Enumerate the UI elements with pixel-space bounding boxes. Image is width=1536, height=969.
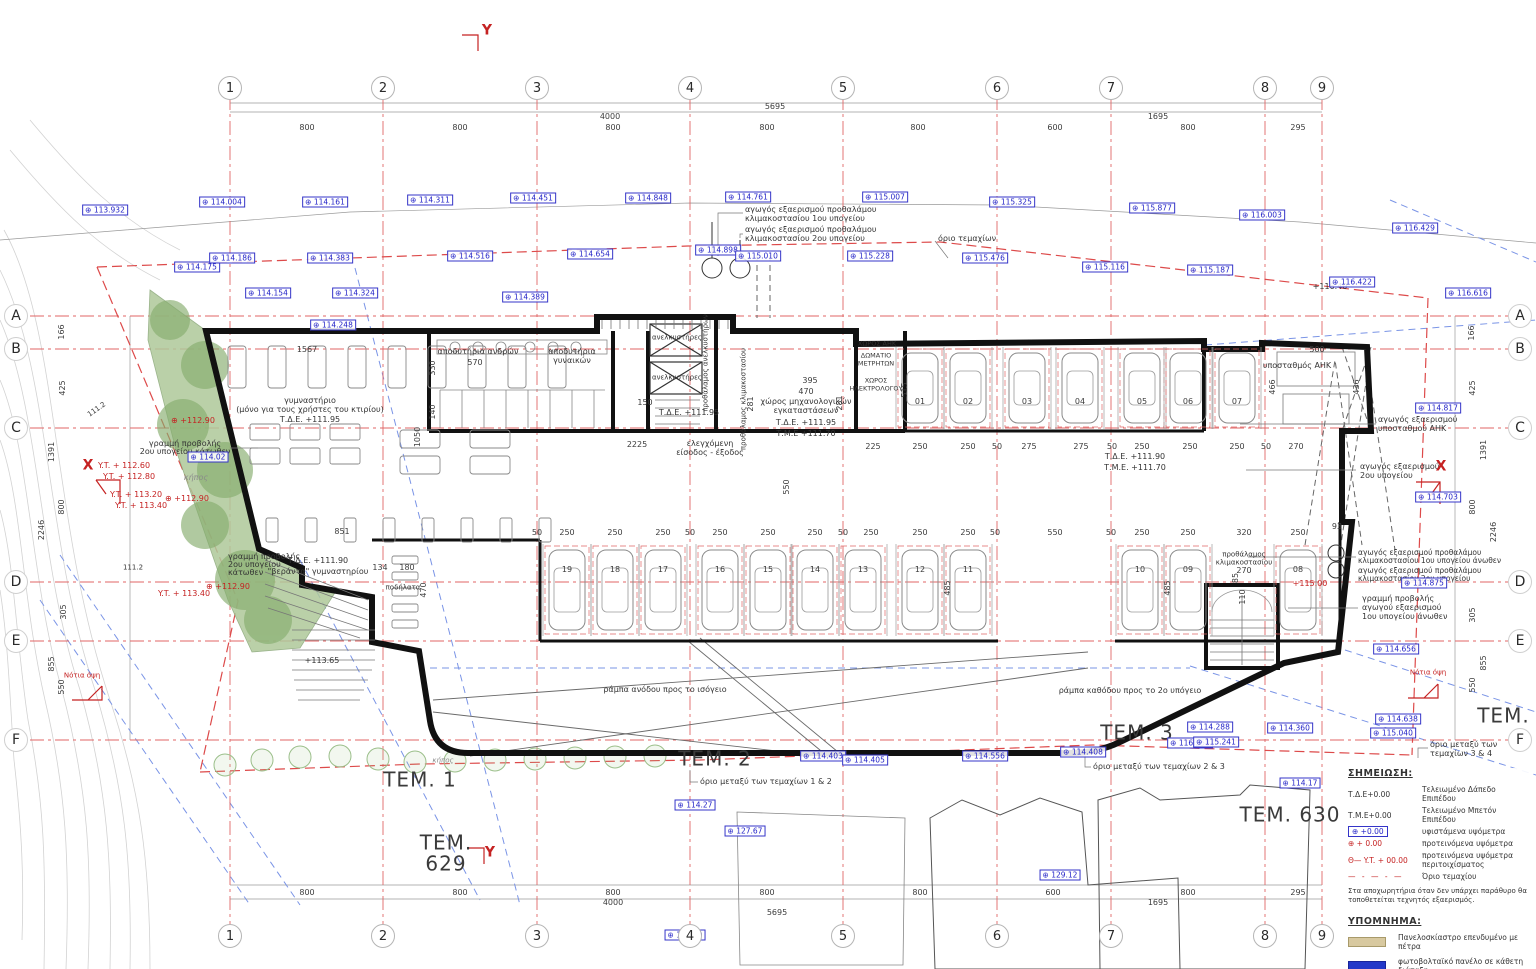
dimension-label: 295 (1290, 889, 1305, 897)
grid-column-number: 8 (1253, 924, 1277, 948)
survey-elevation-marker: ⊕ 114.451 (510, 193, 556, 204)
dimension-label: 180 (399, 564, 414, 572)
grid-column-number: 1 (218, 924, 242, 948)
annotation-label: ΧΩΡΟΣ ΑΗΚ (858, 341, 896, 348)
survey-elevation-marker: ⊕ 116.429 (1392, 223, 1438, 234)
survey-elevation-marker: ⊕ 116.616 (1445, 288, 1491, 299)
annotation-label: +115.00 (1293, 580, 1328, 588)
survey-elevation-marker: ⊕ 114.848 (625, 193, 671, 204)
dimension-label: 281 (747, 396, 755, 411)
survey-elevation-marker: ⊕ 114.004 (199, 197, 245, 208)
legend-swatch-pv-vertical (1348, 961, 1386, 969)
parcel-label: ΤΕΜ. (420, 833, 472, 854)
annotation-label: ΧΩΡΟΣ (865, 378, 888, 385)
legend-panel: ΣΗΜΕΙΩΣΗ: Τ.Δ.Ε+0.00Τελειωμένο Δάπεδο Επ… (1348, 768, 1532, 969)
annotation-label: Τ.Δ.Ε. +111.95 (776, 419, 836, 427)
grid-row-letter: F (1508, 728, 1532, 752)
dimension-label: 50 (1261, 443, 1271, 451)
parking-space-number: 06 (1183, 398, 1193, 406)
parking-space-number: 14 (810, 566, 820, 574)
dimension-label: 1567 (297, 346, 317, 354)
dimension-label: 166 (1468, 325, 1476, 340)
dimension-label: 305 (60, 604, 68, 619)
notes-rows: Τ.Δ.Ε+0.00Τελειωμένο Δάπεδο ΕπιπέδουΤ.Μ.… (1348, 785, 1532, 881)
annotation-label: κλιμακοστασίου 1ου υπογείου άνωθεν (1358, 557, 1501, 565)
annotation-label: προθάλαμος ανελκυστήρων (702, 314, 709, 412)
dimension-label: 570 (467, 359, 482, 367)
dimension-label: 250 (960, 443, 975, 451)
survey-elevation-marker: ⊕ 115.187 (1187, 265, 1233, 276)
dimension-label: 800 (910, 124, 925, 132)
annotation-label: Y.T. + 113.20 (110, 491, 162, 499)
parking-space-number: 17 (658, 566, 668, 574)
parking-space-number: 07 (1232, 398, 1242, 406)
parking-space-number: 11 (963, 566, 973, 574)
annotation-label: +113.65 (305, 657, 340, 665)
dimension-label: 500 (1309, 346, 1324, 354)
legend-note-key: Θ— Y.T. + 00.00 (1348, 856, 1422, 865)
survey-elevation-marker: ⊕ 114.817 (1415, 403, 1461, 414)
annotation-label: είσοδος - έξοδος (676, 449, 744, 457)
annotation-label: Y.T. + 113.40 (158, 590, 210, 598)
dimension-label: 800 (1469, 499, 1477, 514)
annotation-label: γυναικών (553, 357, 591, 365)
survey-elevation-marker: ⊕ 115.116 (1082, 262, 1128, 273)
dimension-label: 50 (838, 529, 848, 537)
annotation-label: Τ.Μ.Ε. +111.70 (1104, 464, 1166, 472)
grid-column-number: 6 (985, 924, 1009, 948)
dimension-label: 250 (1134, 529, 1149, 537)
survey-elevation-marker: ⊕ 114.875 (1401, 578, 1447, 589)
survey-elevation-marker: ⊕ 114.383 (307, 253, 353, 264)
dimension-label: 305 (1469, 607, 1477, 622)
survey-elevation-marker: ⊕ 115.325 (989, 197, 1035, 208)
grid-column-number: 9 (1310, 76, 1334, 100)
annotation-label: κήπος (432, 757, 453, 764)
dimension-label: 250 (807, 529, 822, 537)
grid-row-letter: F (4, 728, 28, 752)
dimension-label: 250 (1229, 443, 1244, 451)
dimension-label: 2246 (1490, 522, 1498, 542)
leader-lines (230, 213, 1428, 782)
annotation-label: όριο μεταξύ των τεμαχίων 1 & 2 (700, 778, 832, 786)
dimension-label: 4000 (600, 113, 620, 121)
annotation-label: αποδυτήρια ανδρών (438, 348, 519, 356)
survey-elevation-marker: ⊕ 115.007 (862, 192, 908, 203)
annotation-label: ράμπα καθόδου προς το 2ο υπόγειο (1059, 687, 1202, 695)
dimension-label: 485 (944, 580, 952, 595)
parking-space-number: 03 (1022, 398, 1032, 406)
dimension-label: 250 (712, 529, 727, 537)
survey-elevation-marker: ⊕ 114.403 (800, 751, 846, 762)
parking-space-number: 05 (1137, 398, 1147, 406)
notes-title: ΣΗΜΕΙΩΣΗ: (1348, 768, 1532, 779)
dimension-label: 140 (429, 404, 437, 419)
dimension-label: 550 (1469, 677, 1477, 692)
dimension-label: 250 (1134, 443, 1149, 451)
dimension-label: 250 (760, 529, 775, 537)
dimension-label: 800 (912, 889, 927, 897)
survey-elevation-marker: ⊕ 114.324 (332, 288, 378, 299)
dimension-label: 466 (1269, 379, 1277, 394)
stair-treads (265, 320, 1274, 700)
grid-column-number: 7 (1099, 924, 1123, 948)
annotation-label: 111.2 (123, 564, 143, 571)
survey-elevation-marker: ⊕ 114.656 (1373, 644, 1419, 655)
dimension-label: 1391 (48, 442, 56, 462)
survey-elevation-marker: ⊕ 114.154 (245, 288, 291, 299)
floor-plan-sheet: ΣΗΜΕΙΩΣΗ: Τ.Δ.Ε+0.00Τελειωμένο Δάπεδο Επ… (0, 0, 1536, 969)
survey-elevation-marker: ⊕ 115.877 (1129, 203, 1175, 214)
legend-item-row: Πανελοσκίαστρο επενδυμένο με πέτρα (1348, 933, 1532, 951)
annotation-label: κλιμακοστασίου (1216, 559, 1273, 566)
grid-column-number: 5 (831, 76, 855, 100)
dimension-label: 250 (863, 529, 878, 537)
dimension-label: 250 (1182, 443, 1197, 451)
grid-row-letter: A (1508, 304, 1532, 328)
legend-note-row: Θ— Y.T. + 00.00προτεινόμενα υψόμετρα περ… (1348, 851, 1532, 869)
grid-row-letter: C (1508, 416, 1532, 440)
legend-note-row: — - — - —Όριο τεμαχίου (1348, 872, 1532, 881)
annotation-label: Τ.Μ.Ε +111.70 (776, 430, 835, 438)
dimension-label: 800 (759, 889, 774, 897)
legend-note-row: ⊕ + 0.00προτεινόμενα υψόμετρα (1348, 839, 1532, 848)
dimension-label: 851 (334, 528, 349, 536)
survey-elevation-marker: ⊕ 129.12 (1040, 870, 1081, 881)
dimension-label: 250 (912, 443, 927, 451)
legend-note-key: — - — - — (1348, 872, 1422, 881)
grid-column-number: 9 (1310, 924, 1334, 948)
parking-space-number: 18 (610, 566, 620, 574)
legend-note-desc: προτεινόμενα υψόμετρα (1422, 839, 1532, 848)
survey-elevation-marker: ⊕ 127.67 (725, 826, 766, 837)
survey-elevation-marker: ⊕ 115.228 (847, 251, 893, 262)
dimension-label: 800 (759, 124, 774, 132)
dimension-label: 600 (1045, 889, 1060, 897)
dimension-label: 50 (532, 529, 542, 537)
grid-row-letter: B (4, 337, 28, 361)
legend-note: Στα αποχωρητήρια όταν δεν υπάρχει παράθυ… (1348, 887, 1532, 906)
legend-note-desc: προτεινόμενα υψόμετρα περιτοιχίσματος (1422, 851, 1532, 869)
dimension-label: 5695 (767, 909, 787, 917)
legend-item-label: φωτοβολταϊκό πανέλο σε κάθετη διάταξη (1398, 957, 1532, 969)
parking-space-number: 16 (715, 566, 725, 574)
annotation-label: Νότια όψη (64, 672, 100, 679)
dimension-label: 855 (48, 656, 56, 671)
annotation-label: ανελκυστήρες (652, 334, 702, 341)
ramp-lines (433, 638, 1088, 757)
annotation-label: 1ου υπογείου άνωθεν (1362, 613, 1447, 621)
grid-row-letter: B (1508, 337, 1532, 361)
survey-elevation-marker: ⊕ 114.556 (962, 751, 1008, 762)
grid-column-number: 4 (678, 76, 702, 100)
grid-column-number: 4 (678, 924, 702, 948)
dimension-label: 550 (58, 679, 66, 694)
dimension-label: 250 (912, 529, 927, 537)
annotation-label: κάτωθεν (228, 569, 263, 577)
grid-column-number: 8 (1253, 76, 1277, 100)
legend-note-row: Τ.Μ.Ε+0.00Τελειωμένο Μπετόν Επιπέδου (1348, 806, 1532, 824)
dimension-label: 50 (1107, 443, 1117, 451)
survey-elevation-marker: ⊕ 115.010 (735, 251, 781, 262)
grid-column-number: 6 (985, 76, 1009, 100)
dimension-label: 425 (1469, 380, 1477, 395)
survey-elevation-marker: ⊕ 114.288 (1187, 722, 1233, 733)
parking-space-number: 09 (1183, 566, 1193, 574)
dimension-label: 320 (1236, 529, 1251, 537)
parking-space-number: 04 (1075, 398, 1085, 406)
annotation-label: Y.T. + 112.60 (98, 462, 150, 470)
survey-elevation-marker: ⊕ 114.516 (447, 251, 493, 262)
legend-rows: Πανελοσκίαστρο επενδυμένο με πέτραφωτοβο… (1348, 933, 1532, 969)
dimension-label: 250 (1180, 529, 1195, 537)
dimension-label: 800 (605, 124, 620, 132)
dimension-label: 1391 (1480, 440, 1488, 460)
survey-elevation-marker: ⊕ 116.422 (1329, 277, 1375, 288)
grid-column-number: 3 (525, 924, 549, 948)
parking-space-number: 08 (1293, 566, 1303, 574)
annotation-label: ⊕ +112.90 (171, 417, 215, 425)
parking-space-number: 01 (915, 398, 925, 406)
dimension-label: 855 (1480, 655, 1488, 670)
dimension-label: 250 (655, 529, 670, 537)
annotation-label: Τ.Δ.Ε. +111.90 (1105, 453, 1165, 461)
annotation-label: υποσταθμός ΑΗΚ (1263, 362, 1331, 370)
annotation-label: εγκαταστάσεων (774, 407, 839, 415)
dimension-label: 1695 (1148, 113, 1168, 121)
annotation-label: ανελκυστήρες (652, 374, 702, 381)
grid-column-number: 2 (371, 924, 395, 948)
annotation-label: Τ.Δ.Ε. +111.95 (280, 416, 340, 424)
survey-elevation-marker: ⊕ 114.408 (1060, 747, 1106, 758)
dimension-label: 470 (798, 388, 813, 396)
annotation-label: ράμπα ανόδου προς το ισόγειο (603, 686, 726, 694)
survey-elevation-marker: ⊕ 114.186 (209, 253, 255, 264)
dimension-label: 800 (452, 889, 467, 897)
annotation-label: ΔΩΜΑΤΙΟ (861, 353, 891, 360)
parcel-label: ΤΕΜ. 630 (1240, 805, 1341, 826)
parking-space-number: 12 (915, 566, 925, 574)
dimension-label: 250 (960, 529, 975, 537)
annotation-label: υποσταθμού ΑΗΚ (1378, 425, 1446, 433)
dimension-label: 50 (685, 529, 695, 537)
dimension-label: 800 (605, 889, 620, 897)
dimension-label: 800 (299, 889, 314, 897)
neighbour-buildings (737, 785, 1310, 969)
legend-note-key: ⊕ +0.00 (1348, 827, 1422, 836)
survey-elevation-marker: ⊕ 114.27 (675, 800, 716, 811)
legend-note-row: Τ.Δ.Ε+0.00Τελειωμένο Δάπεδο Επιπέδου (1348, 785, 1532, 803)
annotation-label: κλιμακοστασίου 1ου υπογείου (745, 215, 865, 223)
annotation-label: Νότια όψη (1410, 669, 1446, 676)
dimension-label: 436 (1353, 379, 1361, 394)
survey-elevation-marker: ⊕ 114.311 (407, 195, 453, 206)
dimension-label: 295 (1290, 124, 1305, 132)
legend-swatch-stone (1348, 937, 1386, 947)
dimension-label: 330 (429, 360, 437, 375)
grid-row-letter: E (4, 629, 28, 653)
dimension-label: 1050 (414, 427, 422, 447)
survey-elevation-marker: ⊕ 116.003 (1239, 210, 1285, 221)
annotation-label: Y.T. + 112.80 (103, 473, 155, 481)
legend-item-row: φωτοβολταϊκό πανέλο σε κάθετη διάταξη (1348, 957, 1532, 969)
dimension-label: 1695 (1148, 899, 1168, 907)
dimension-label: 395 (802, 377, 817, 385)
dimension-label: 800 (1180, 889, 1195, 897)
survey-elevation-marker: ⊕ 114.898 (695, 245, 741, 256)
dimension-label: 550 (783, 479, 791, 494)
annotation-label: ποδήλατα (386, 584, 421, 591)
annotation-label: ΗΛΕΚΤΡΟΛΟΓΟΥ (850, 386, 903, 393)
parcel-label: ΤΕΜ. 1 (383, 770, 457, 791)
dimension-label: 250 (559, 529, 574, 537)
legend-note-key: Τ.Δ.Ε+0.00 (1348, 790, 1422, 799)
annotation-label: Y (485, 846, 495, 861)
grid-column-number: 5 (831, 924, 855, 948)
dimension-label: 800 (299, 124, 314, 132)
survey-elevation-marker: ⊕ 115.241 (1193, 737, 1239, 748)
dimension-label: 50 (1106, 529, 1116, 537)
survey-elevation-marker: ⊕ 113.932 (82, 205, 128, 216)
dimension-label: 50 (990, 529, 1000, 537)
contour-lines (0, 120, 180, 969)
grid-column-number: 3 (525, 76, 549, 100)
interior-walls (372, 317, 1340, 668)
parking-space-number: 13 (858, 566, 868, 574)
survey-elevation-marker: ⊕ 114.654 (567, 249, 613, 260)
survey-elevation-marker: ⊕ 114.360 (1267, 723, 1313, 734)
annotation-label: προθάλαμος κλιμακοστασίου (740, 348, 747, 450)
annotation-label: 2ου υπογείου (1360, 472, 1413, 480)
annotation-label: τεμαχίων 3 & 4 (1430, 750, 1492, 758)
annotation-label: "βεράντα" γυμναστηρίου (268, 568, 369, 576)
survey-elevation-marker: ⊕ 114.248 (310, 320, 356, 331)
legend-note-desc: Όριο τεμαχίου (1422, 872, 1532, 881)
annotation-label: Y.T. + 113.40 (115, 502, 167, 510)
dimension-label: 270 (1236, 567, 1251, 575)
annotation-label: όριο τεμαχίων (938, 235, 996, 243)
grid-row-letter: D (4, 570, 28, 594)
grid-column-number: 1 (218, 76, 242, 100)
annotation-label: κλιμακοστασίου 2ου υπογείου (745, 235, 865, 243)
annotation-label: όριο μεταξύ των τεμαχίων 2 & 3 (1093, 763, 1225, 771)
grid-row-letter: D (1508, 570, 1532, 594)
dimension-label: 250 (607, 529, 622, 537)
annotation-label: X (1436, 460, 1447, 475)
survey-elevation-marker: ⊕ 114.17 (1280, 778, 1321, 789)
dimension-label: 93 (1332, 523, 1342, 531)
dimension-label: 250 (1290, 529, 1305, 537)
survey-elevation-marker: ⊕ 114.638 (1375, 714, 1421, 725)
parking-space-number: 15 (763, 566, 773, 574)
dimension-label: 225 (865, 443, 880, 451)
grid-column-number: 7 (1099, 76, 1123, 100)
dimension-label: 134 (372, 564, 387, 572)
dimension-label: 600 (1047, 124, 1062, 132)
dimension-label: 110 (1239, 589, 1247, 604)
survey-elevation-marker: ⊕ 114.405 (842, 755, 888, 766)
dimension-label: 4000 (603, 899, 623, 907)
legend-note-desc: υφιστάμενα υψόμετρα (1422, 827, 1532, 836)
parcel-label: 629 (425, 854, 466, 875)
annotation-label: Y (482, 24, 492, 39)
survey-elevation-marker: ⊕ 114.02 (188, 452, 229, 463)
legend-note-row: ⊕ +0.00υφιστάμενα υψόμετρα (1348, 827, 1532, 836)
parcel-label: ΤΕΜ. 4 (1477, 706, 1536, 727)
survey-elevation-marker: ⊕ 114.161 (302, 197, 348, 208)
parking-space-number: 19 (562, 566, 572, 574)
grid-row-letter: E (1508, 629, 1532, 653)
parking-space-number: 02 (963, 398, 973, 406)
legend-note-desc: Τελειωμένο Δάπεδο Επιπέδου (1422, 785, 1532, 803)
dimension-label: 550 (1047, 529, 1062, 537)
survey-elevation-marker: ⊕ 114.703 (1415, 492, 1461, 503)
survey-elevation-marker: ⊕ 114.389 (502, 292, 548, 303)
annotation-label: ΜΕΤΡΗΤΩΝ (858, 361, 894, 368)
legend-note-key: ⊕ + 0.00 (1348, 839, 1422, 848)
grid-column-number: 2 (371, 76, 395, 100)
survey-elevation-marker: ⊕ 115.040 (1370, 728, 1416, 739)
dimension-label: 800 (58, 499, 66, 514)
dimension-label: 800 (1180, 124, 1195, 132)
annotation-label: X (83, 459, 94, 474)
legend-note-desc: Τελειωμένο Μπετόν Επιπέδου (1422, 806, 1532, 824)
parcel-label: ΤΕΜ. 2 (678, 749, 752, 770)
dimension-label: 470 (420, 582, 428, 597)
dimension-label: 275 (1073, 443, 1088, 451)
grid-row-letter: C (4, 416, 28, 440)
dimension-label: 50 (992, 443, 1002, 451)
annotation-label: Τ.Δ.Ε. +111.95 (659, 409, 719, 417)
annotation-label: κήπος (184, 474, 208, 482)
legend-note-key: Τ.Μ.Ε+0.00 (1348, 811, 1422, 820)
dimension-label: 5695 (765, 103, 785, 111)
annotation-label: (μόνο για τους χρήστες του κτιρίου) (236, 406, 384, 414)
dimension-label: 2225 (627, 441, 647, 449)
dimension-label: 2246 (38, 520, 46, 540)
annotation-label: ⊕ +112.90 (206, 583, 250, 591)
dimension-label: 425 (59, 380, 67, 395)
dimension-label: 800 (452, 124, 467, 132)
dimension-label: 485 (1164, 580, 1172, 595)
annotation-label: ⊕ +112.90 (165, 495, 209, 503)
legend-item-label: Πανελοσκίαστρο επενδυμένο με πέτρα (1398, 933, 1532, 951)
grid-row-letter: A (4, 304, 28, 328)
annotation-label: Τ.Δ.Ε. +111.90 (288, 557, 348, 565)
dimension-label: 275 (1021, 443, 1036, 451)
survey-elevation-marker: ⊕ 114.761 (725, 192, 771, 203)
survey-elevation-marker: ⊕ 115.476 (962, 253, 1008, 264)
parcel-label: ΤΕΜ. 3 (1100, 723, 1174, 744)
dimension-label: 166 (58, 324, 66, 339)
dimension-label: 270 (1288, 443, 1303, 451)
dimension-label: 150 (637, 399, 652, 407)
legend-title: ΥΠΟΜΝΗΜΑ: (1348, 916, 1532, 927)
parking-space-number: 10 (1135, 566, 1145, 574)
